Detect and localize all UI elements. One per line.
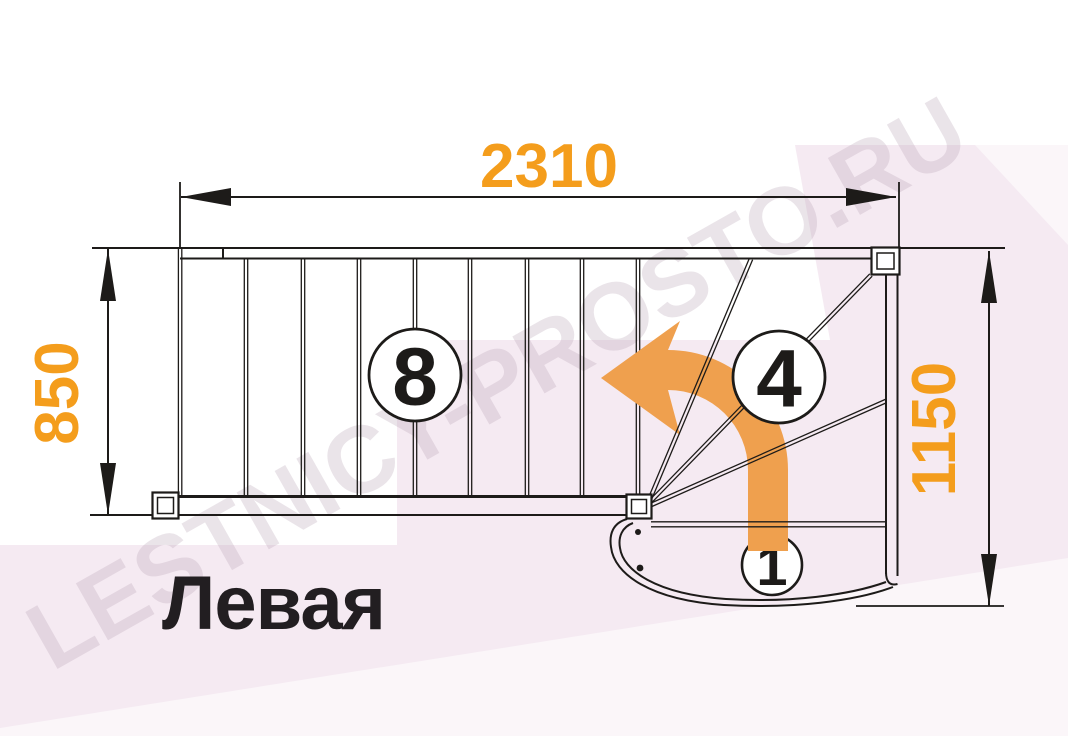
- newel-post-bottom-left-core: [158, 498, 174, 514]
- fastener-dot-lower: [637, 565, 644, 572]
- step-badge-8: 8: [369, 329, 461, 423]
- staircase-plan-drawing: LESTNICY-PROSTO.RU: [0, 0, 1068, 736]
- newel-post-top-right-core: [877, 253, 894, 269]
- step-badge-4: 4: [733, 331, 825, 425]
- dimension-exit-width-value: 1150: [900, 362, 969, 497]
- dimension-flight-width-value: 850: [23, 341, 92, 444]
- plan-canvas: LESTNICY-PROSTO.RU: [0, 0, 1068, 736]
- step-4-number: 4: [756, 334, 802, 425]
- fastener-dot-upper: [635, 529, 641, 535]
- variant-title: Левая: [162, 561, 385, 646]
- dimension-total-run-value: 2310: [480, 132, 618, 201]
- step-8-number: 8: [392, 332, 438, 423]
- newel-post-center-hub-core: [632, 500, 647, 514]
